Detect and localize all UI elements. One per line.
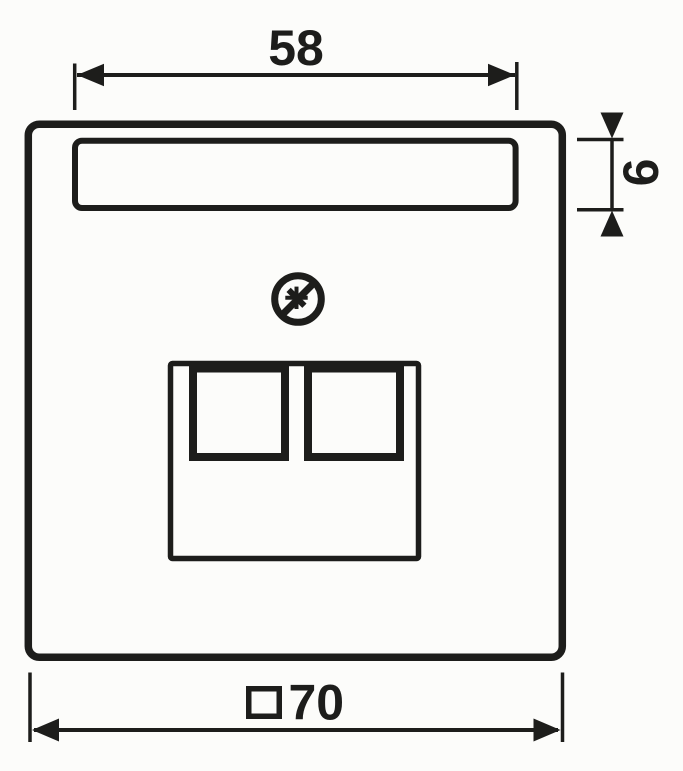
svg-text:58: 58 xyxy=(268,20,324,76)
svg-text:6: 6 xyxy=(613,159,669,187)
svg-text:70: 70 xyxy=(289,675,345,731)
